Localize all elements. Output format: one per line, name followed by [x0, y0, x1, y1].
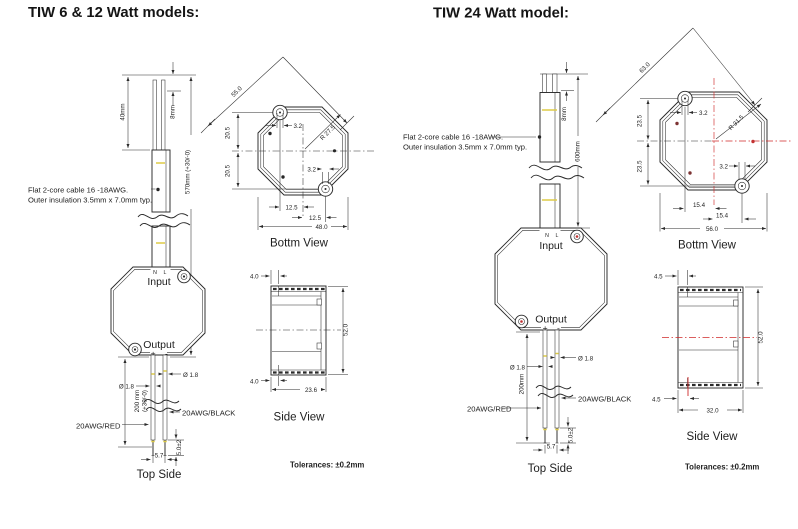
- right-dim-h2: 15.4: [716, 212, 729, 219]
- right-side-view: 52.0 32.0 4.5 4.5 Side View: [652, 270, 765, 443]
- right-input-wire-2: [553, 74, 558, 93]
- left-bv-screw-top: [273, 105, 287, 119]
- right-title: TIW 24 Watt model:: [433, 6, 569, 22]
- left-cable-note-line1: Flat 2-core cable 16 -18AWG.: [28, 186, 128, 195]
- left-dim-5-0: 5.0±2: [176, 439, 183, 455]
- left-dim-hole-top: 3.2: [294, 123, 303, 130]
- right-bv-screw-bottom: [735, 179, 749, 193]
- left-input-label: Input: [147, 276, 170, 288]
- left-dim-570mm: 570mm (+30/-0): [185, 150, 192, 194]
- right-input-terminals: N L: [545, 233, 561, 239]
- left-dim-200mm-tol: (+30/-0): [142, 390, 149, 412]
- cable-break-squiggle: [529, 165, 582, 170]
- right-wire-black-label: 20AWG/BLACK: [578, 395, 631, 404]
- right-cable-note-line2: Outer insulation 3.5mm x 7.0mm typ.: [403, 143, 527, 152]
- right-top-side-caption: Top Side: [528, 463, 573, 475]
- left-dim-flange-bottom: 4.0: [250, 379, 259, 386]
- left-output-wire-black: [163, 355, 167, 440]
- left-dim-depth: 23.6: [305, 387, 318, 394]
- left-side-view-caption: Side View: [274, 412, 326, 424]
- left-bottom-view-caption: Bottm View: [270, 238, 329, 250]
- left-input-cable-upper: [152, 150, 170, 212]
- right-output-dimensions: Ø 1.8 Ø 1.8 200mm 20AWG/RED 20AWG/BLACK …: [467, 332, 631, 475]
- left-cable-note-line2: Outer insulation 3.5mm x 7.0mm typ.: [28, 196, 152, 205]
- left-input-wire-1: [153, 80, 157, 150]
- left-side-view: 52.0 23.6 4.0 4.0 Side View: [250, 270, 350, 424]
- left-output-dimensions: Ø 1.8 Ø 1.8 200 mm (+30/-0) 20AWG/RED 20…: [76, 357, 235, 481]
- left-input-cable-lower: [152, 226, 170, 267]
- left-wire-black-label: 20AWG/BLACK: [182, 409, 235, 418]
- left-body-top-view: N L Input Output + -: [111, 267, 205, 359]
- left-dim-diagonal: 55.0: [230, 85, 244, 99]
- right-cable-note-line1: Flat 2-core cable 16 -18AWG.: [403, 133, 503, 142]
- right-top-side-assembly: 8mm 600mm Flat 2-core cable 16 -18AWG. O…: [403, 62, 590, 228]
- left-screw-bottom-left: [129, 343, 142, 356]
- left-dim-v1: 20.5: [225, 126, 232, 139]
- right-dim-flange-bottom: 4.5: [652, 397, 661, 404]
- right-dim-height: 52.0: [758, 331, 765, 344]
- right-dim-hole-top: 3.2: [699, 110, 708, 117]
- right-dim-flange-top: 4.5: [654, 274, 663, 281]
- right-tolerance-note: Tolerances: ±0.2mm: [685, 463, 759, 472]
- right-dim-dia-left: Ø 1.8: [510, 365, 526, 372]
- right-output-wires: [536, 330, 573, 443]
- left-dim-flange-top: 4.0: [250, 274, 259, 281]
- right-dim-depth: 32.0: [706, 407, 719, 414]
- right-dim-600mm: 600mm: [575, 141, 582, 162]
- left-title: TIW 6 & 12 Watt models:: [28, 5, 199, 21]
- right-output-wire-black: [555, 330, 559, 428]
- wire-break-squiggle: [536, 385, 571, 389]
- left-top-side-caption: Top Side: [137, 469, 182, 481]
- right-dim-width: 56.0: [706, 226, 719, 233]
- right-side-view-caption: Side View: [687, 431, 739, 443]
- tiw-24-drawing: TIW 24 Watt model: 8mm 600mm Flat 2-core…: [403, 6, 791, 476]
- left-bottom-view: 55.0 R 27.5 3.2 3.2 20.5 20.5 12.5: [201, 57, 374, 250]
- right-dim-5-7: 5.7: [547, 443, 556, 450]
- right-screw-top-right: [571, 230, 584, 243]
- left-dim-hole-bottom: 3.2: [307, 167, 316, 174]
- left-screw-top-right: [178, 270, 191, 283]
- right-dim-8mm: 8mm: [561, 107, 568, 121]
- right-wire-red-label: 20AWG/RED: [467, 405, 512, 414]
- left-dim-8mm: 8mm: [170, 105, 177, 119]
- right-dim-200mm: 200mm: [519, 374, 526, 395]
- left-dim-height: 52.0: [343, 323, 350, 336]
- left-dim-dia-right: Ø 1.8: [183, 372, 199, 379]
- wire-break-squiggle: [144, 399, 179, 403]
- left-dim-h2: 12.5: [309, 215, 322, 222]
- left-dim-width: 48.0: [315, 224, 328, 231]
- right-dim-dia-right: Ø 1.8: [578, 356, 594, 363]
- left-tolerance-note: Tolerances: ±0.2mm: [290, 461, 364, 470]
- left-bv-screw-bottom: [318, 182, 332, 196]
- left-output-wire-red: [151, 355, 155, 440]
- right-input-cable-upper: [540, 93, 560, 163]
- cable-break-squiggle: [138, 214, 188, 219]
- right-dim-diagonal: 63.0: [638, 61, 652, 75]
- left-dim-h1: 12.5: [285, 204, 298, 211]
- right-dim-5-0: 5.0±2: [568, 427, 575, 443]
- right-dim-v2: 23.5: [637, 160, 644, 173]
- left-input-wire-2: [162, 80, 166, 150]
- mechanical-drawing-page: TIW 6 & 12 Watt models: 40mm 8mm 570mm (…: [0, 0, 798, 529]
- right-dim-h1: 15.4: [693, 202, 706, 209]
- left-dim-40mm: 40mm: [120, 103, 127, 120]
- right-bottom-view: 63.0 R 31.5 3.2 3.2 23.5 23.5 15.4: [596, 28, 791, 252]
- right-bv-screw-top: [678, 91, 692, 105]
- right-output-wire-red: [543, 330, 547, 428]
- right-dim-hole-bottom: 3.2: [719, 163, 728, 170]
- right-bottom-view-caption: Bottm View: [678, 240, 737, 252]
- left-dim-v2: 20.5: [225, 164, 232, 177]
- right-input-cable-lower: [540, 184, 560, 228]
- left-dim-5-7: 5.7: [155, 453, 164, 460]
- drawing-canvas: TIW 6 & 12 Watt models: 40mm 8mm 570mm (…: [0, 0, 798, 529]
- right-input-label: Input: [539, 240, 562, 252]
- tiw-6-12-drawing: TIW 6 & 12 Watt models: 40mm 8mm 570mm (…: [28, 5, 374, 481]
- right-screw-bottom-left: [515, 315, 528, 328]
- right-dim-v1: 23.5: [637, 114, 644, 127]
- left-dim-200mm: 200 mm: [134, 390, 141, 412]
- left-dim-dia-left: Ø 1.8: [119, 384, 135, 391]
- left-wire-red-label: 20AWG/RED: [76, 422, 121, 431]
- right-body-top-view: N L Input Output + -: [495, 228, 607, 333]
- right-input-wire-1: [543, 74, 547, 93]
